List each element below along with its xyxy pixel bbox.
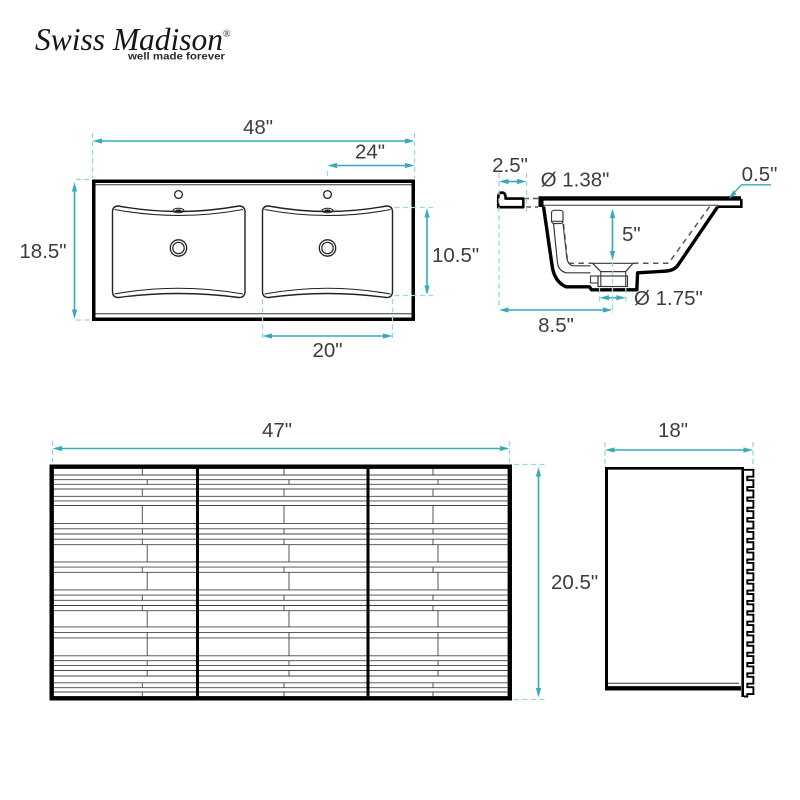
svg-text:20.5": 20.5" [551, 571, 598, 594]
svg-text:20": 20" [312, 339, 342, 362]
svg-text:Ø 1.75": Ø 1.75" [634, 287, 703, 310]
svg-text:5": 5" [622, 223, 641, 246]
svg-text:48": 48" [243, 116, 273, 139]
svg-text:well made forever: well made forever [127, 51, 225, 63]
svg-text:10.5": 10.5" [432, 244, 479, 267]
svg-text:Ø 1.38": Ø 1.38" [541, 169, 610, 192]
svg-text:®: ® [223, 29, 231, 40]
svg-text:8.5": 8.5" [538, 314, 574, 337]
svg-text:0.5": 0.5" [742, 163, 778, 186]
svg-text:47": 47" [262, 419, 292, 442]
svg-text:2.5": 2.5" [492, 154, 528, 177]
svg-text:24": 24" [355, 141, 385, 164]
svg-text:18": 18" [658, 419, 688, 442]
svg-text:18.5": 18.5" [19, 240, 66, 263]
